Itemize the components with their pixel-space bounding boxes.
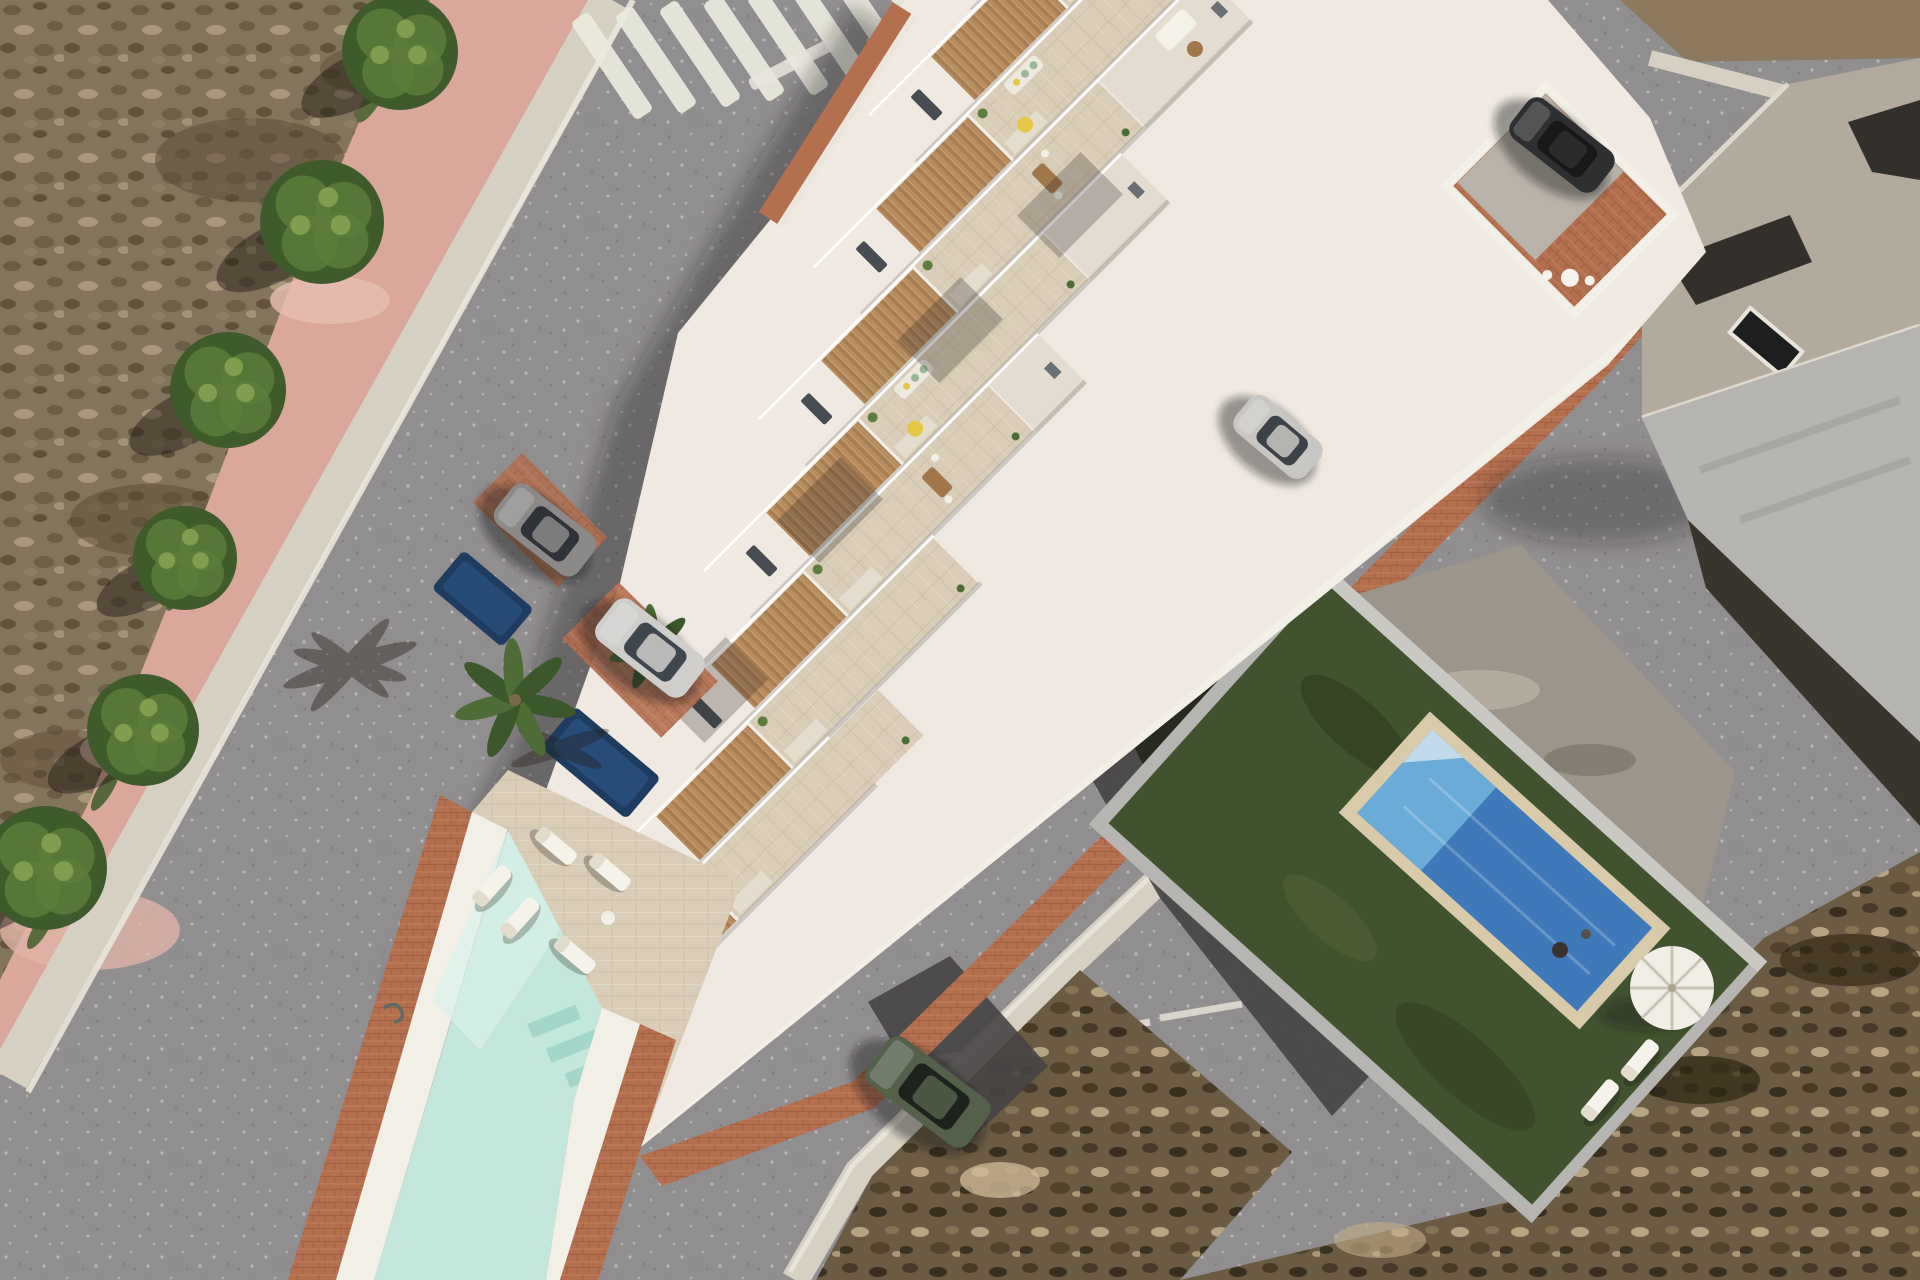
rocks	[1544, 744, 1636, 776]
side-table	[601, 911, 615, 925]
garden-figure	[1581, 929, 1591, 939]
aerial-render: Aerial render of a new white townhouse c…	[0, 0, 1920, 1280]
scrub-light-patch	[1334, 1222, 1426, 1258]
aerial-render-stage: Aerial render of a new white townhouse c…	[0, 0, 1920, 1280]
garden-figure	[1552, 942, 1568, 958]
scrub-light-patch	[960, 1162, 1040, 1198]
scrub-dark-patch	[1780, 934, 1920, 986]
